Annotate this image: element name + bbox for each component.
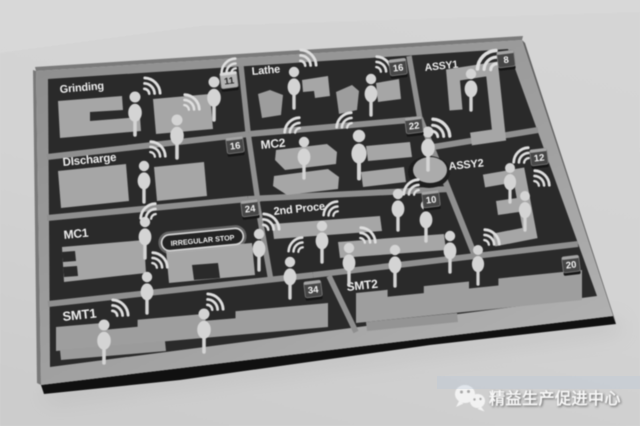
svg-text:精益生产促进中心: 精益生产促进中心 bbox=[489, 389, 621, 408]
svg-text:MC1: MC1 bbox=[63, 226, 89, 242]
svg-text:Lathe: Lathe bbox=[251, 64, 280, 78]
svg-text:24: 24 bbox=[244, 203, 257, 215]
svg-text:22: 22 bbox=[408, 120, 420, 132]
svg-text:16: 16 bbox=[392, 62, 404, 74]
svg-text:MC2: MC2 bbox=[260, 136, 286, 152]
svg-text:12: 12 bbox=[533, 152, 545, 164]
svg-text:16: 16 bbox=[229, 140, 241, 152]
svg-text:20: 20 bbox=[565, 259, 577, 271]
svg-text:10: 10 bbox=[425, 194, 437, 206]
svg-text:34: 34 bbox=[307, 284, 320, 296]
